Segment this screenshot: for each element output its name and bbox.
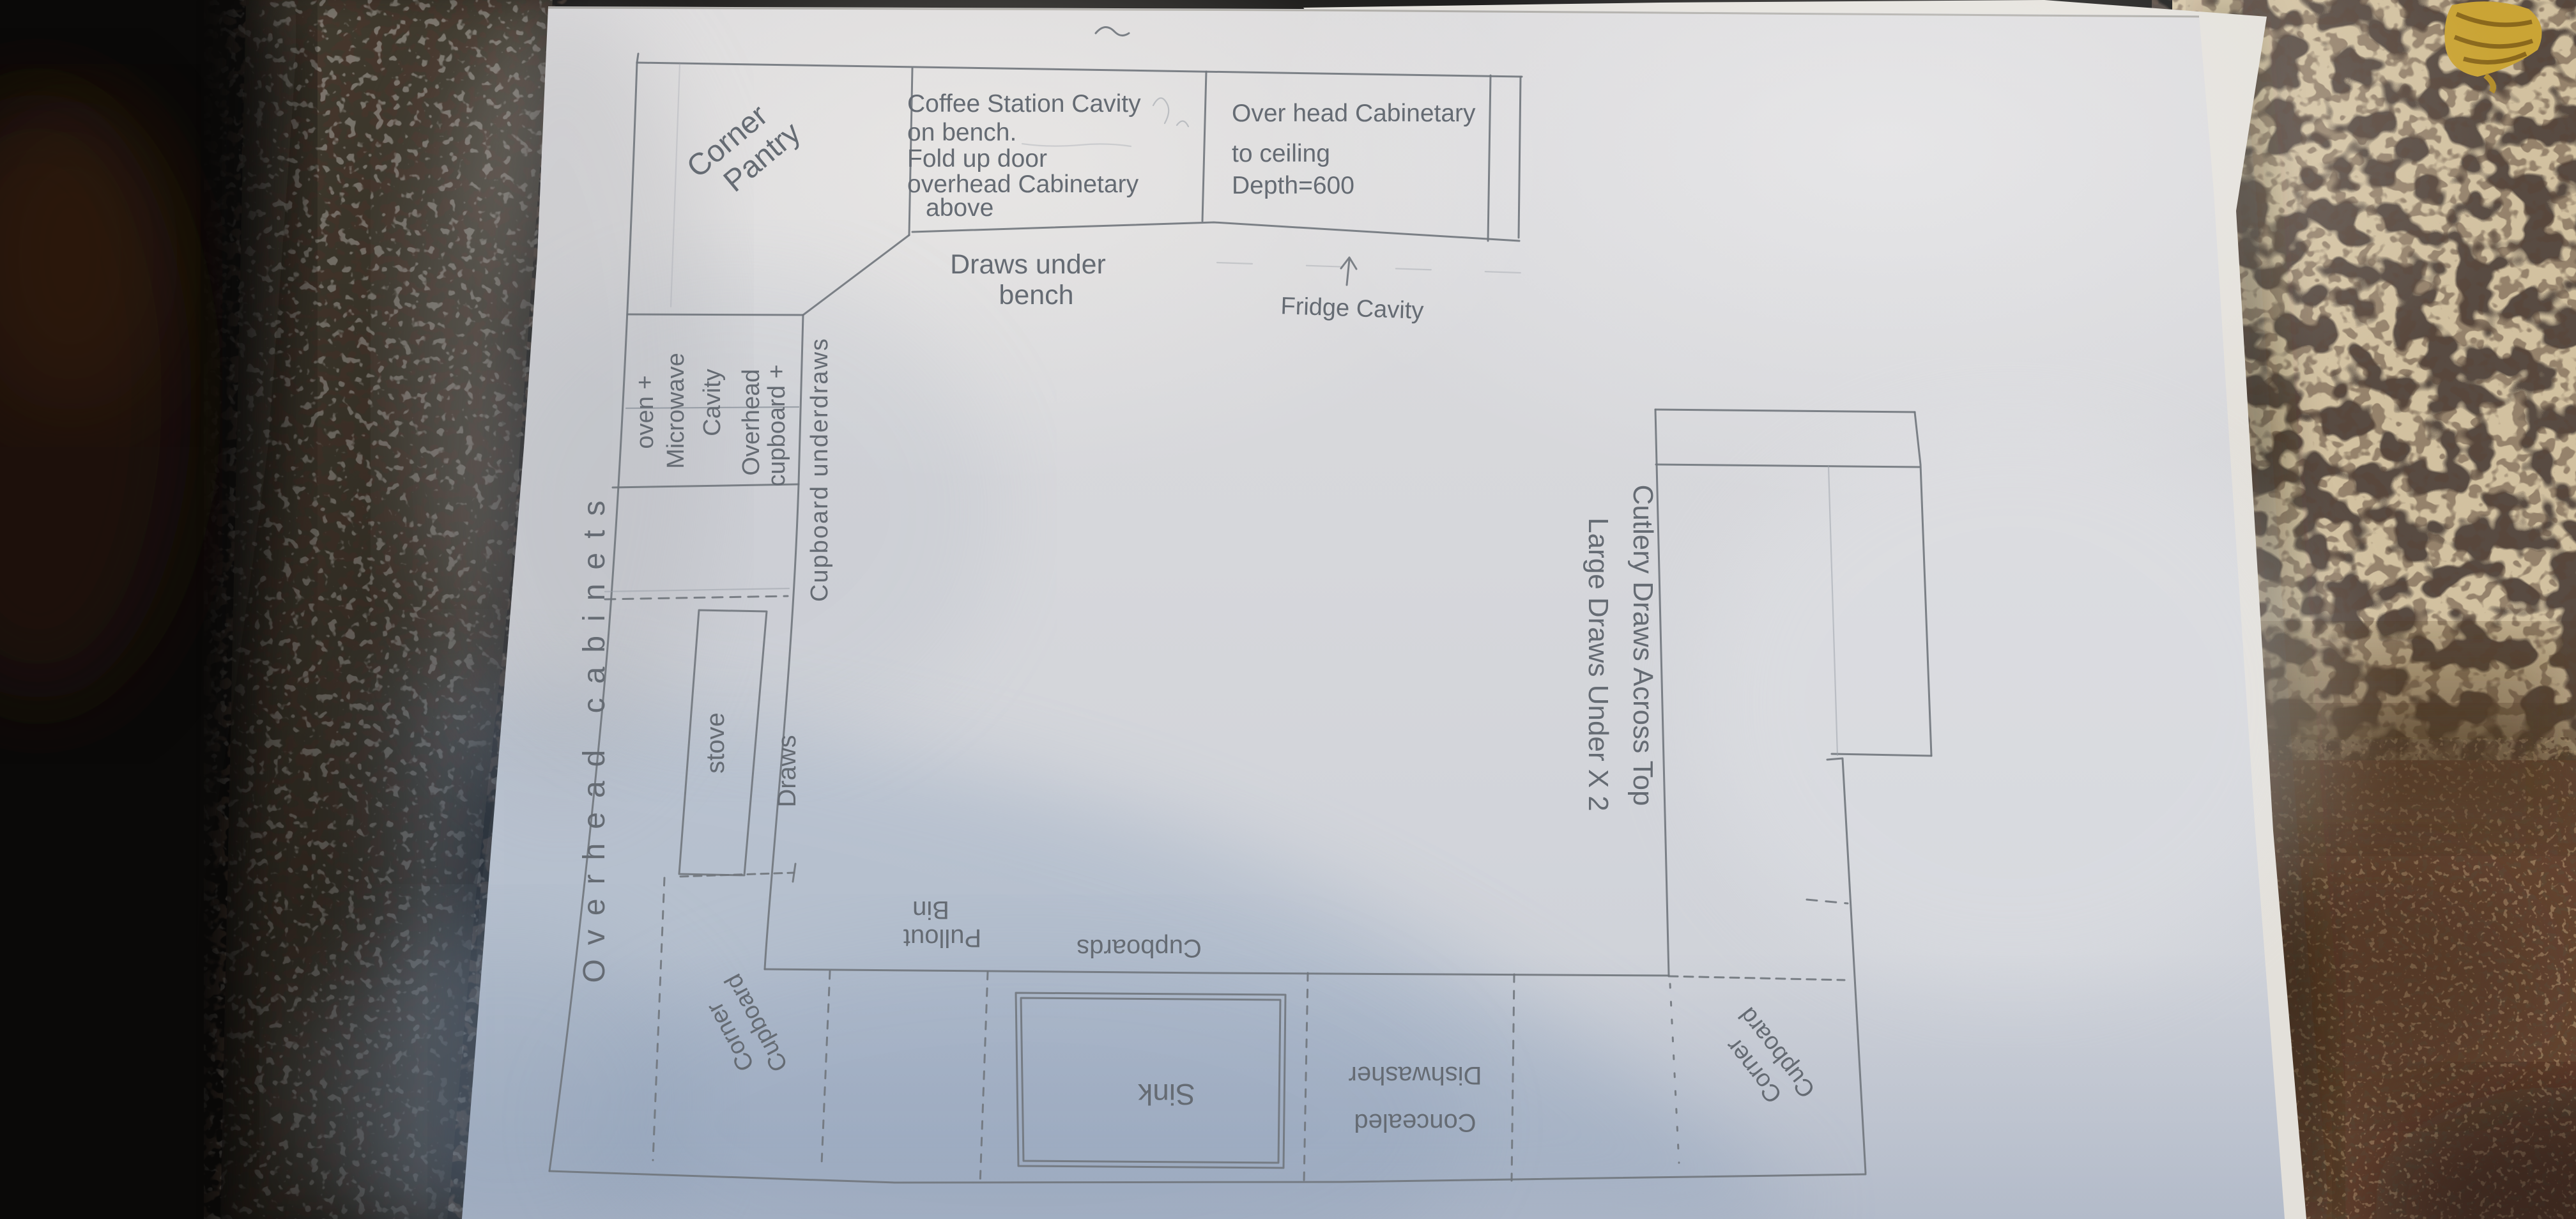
svg-text:above: above <box>926 194 993 222</box>
svg-text:Overhead: Overhead <box>738 369 765 476</box>
svg-text:Overhead cabinets: Overhead cabinets <box>578 487 611 983</box>
svg-text:Dishwasher: Dishwasher <box>1349 1061 1482 1089</box>
svg-text:Draws: Draws <box>773 735 801 807</box>
svg-text:Fridge Cavity: Fridge Cavity <box>1280 293 1424 325</box>
svg-text:Large Draws Under X 2: Large Draws Under X 2 <box>1583 517 1614 811</box>
svg-text:Cupboards: Cupboards <box>1077 934 1202 962</box>
svg-text:to ceiling: to ceiling <box>1232 140 1330 167</box>
svg-text:Microwave: Microwave <box>663 353 689 469</box>
svg-text:Cavity: Cavity <box>699 369 726 436</box>
svg-text:Cupboard underdraws: Cupboard underdraws <box>806 337 833 602</box>
svg-text:Cutlery Draws Across Top: Cutlery Draws Across Top <box>1627 485 1659 806</box>
svg-text:cupboard +: cupboard + <box>763 364 790 486</box>
svg-text:Coffee Station Cavity: Coffee Station Cavity <box>907 90 1141 118</box>
svg-text:Bin: Bin <box>912 896 949 924</box>
svg-text:stove: stove <box>701 712 730 774</box>
svg-text:Pullout: Pullout <box>903 924 981 952</box>
svg-text:Over head Cabinetary: Over head Cabinetary <box>1232 100 1476 127</box>
svg-text:Draws under: Draws under <box>950 249 1106 280</box>
svg-text:Depth=600: Depth=600 <box>1232 172 1354 199</box>
svg-text:Fold up door: Fold up door <box>907 145 1047 172</box>
svg-text:Concealed: Concealed <box>1354 1108 1476 1137</box>
svg-text:on bench.: on bench. <box>907 119 1016 146</box>
svg-text:oven +: oven + <box>632 375 659 448</box>
svg-text:bench: bench <box>999 280 1073 310</box>
svg-text:Sink: Sink <box>1137 1078 1195 1111</box>
